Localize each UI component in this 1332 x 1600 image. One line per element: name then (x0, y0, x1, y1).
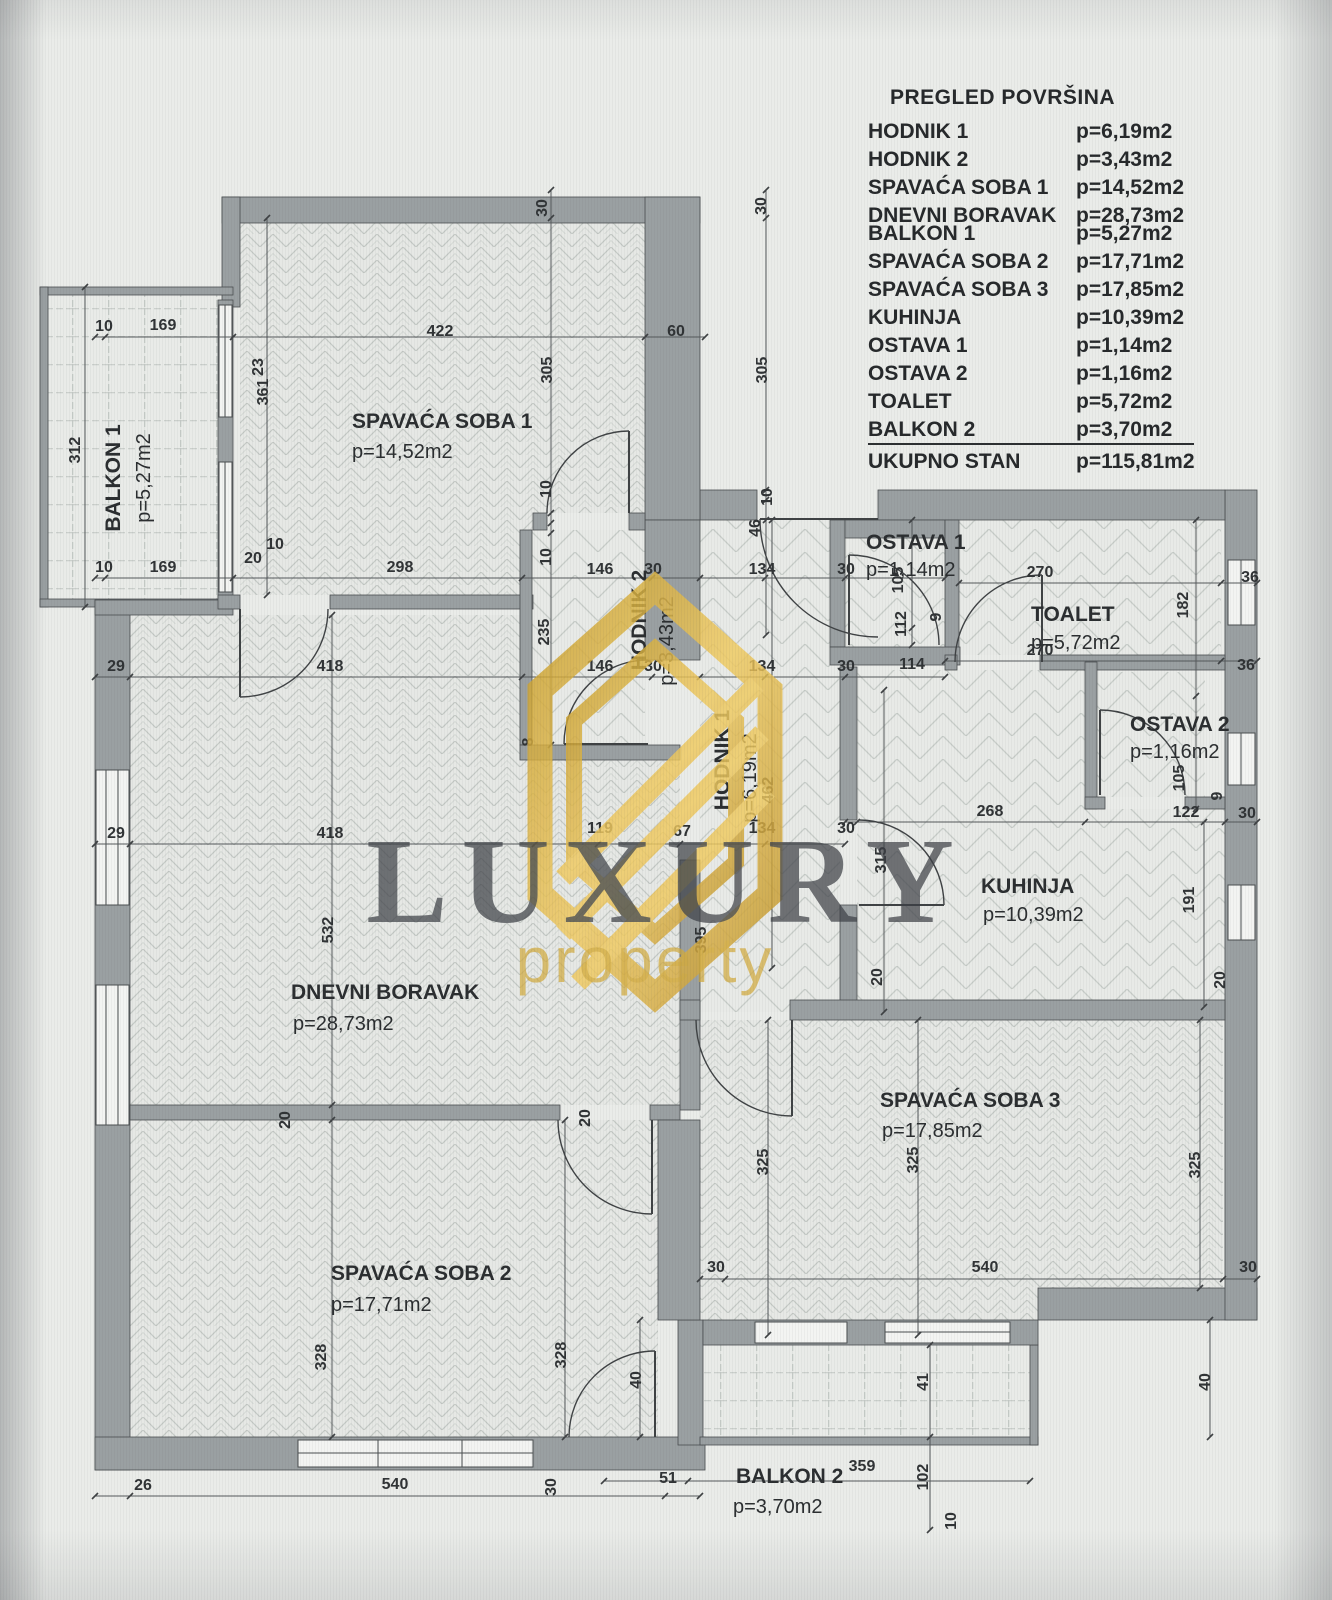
legend-row: SPAVAĆA SOBA 1p=14,52m2 (868, 176, 1194, 198)
dimension-label: 10 (95, 318, 113, 335)
dimension-label: 112 (893, 611, 910, 637)
room-label-balkon1: BALKON 1 (102, 424, 125, 532)
room-label-toalet: TOALET (1031, 603, 1115, 626)
dimension-label: 328 (553, 1342, 570, 1369)
dimension-label: 540 (382, 1476, 409, 1493)
room-label-ostava1: OSTAVA 1 (866, 531, 966, 554)
legend-room-area: p=115,81m2 (1076, 450, 1195, 474)
dimension-label: 169 (150, 559, 177, 576)
floorplan-photo: 1016942260101692981463013430270362941814… (0, 0, 1332, 1600)
dimension-label: 29 (107, 825, 125, 842)
legend-row: OSTAVA 1p=1,14m2 (868, 334, 1194, 356)
legend-room-name: BALKON 2 (868, 418, 975, 441)
dimension-label: 182 (1175, 592, 1192, 619)
legend-room-name: SPAVAĆA SOBA 2 (868, 250, 1048, 273)
dimension-label: 23 (250, 358, 267, 376)
legend-room-name: HODNIK 1 (868, 120, 968, 143)
dimension-label: 122 (1173, 804, 1200, 821)
legend-row: TOALETp=5,72m2 (868, 390, 1194, 412)
dimension-label: 312 (67, 437, 84, 464)
legend-row: HODNIK 1p=6,19m2 (868, 120, 1194, 142)
watermark-property-text: property (516, 924, 775, 996)
legend-room-name: TOALET (868, 390, 952, 413)
window-ostava2-east (1228, 733, 1255, 785)
legend-room-area: p=10,39m2 (1076, 306, 1184, 330)
legend-room-area: p=5,72m2 (1076, 390, 1172, 414)
dimension-label: 328 (313, 1344, 330, 1371)
dimension-label: 40 (1197, 1373, 1214, 1391)
dimension-label: 10 (943, 1512, 960, 1530)
dimension-label: 29 (107, 658, 125, 675)
dimension-label: 9 (928, 612, 945, 621)
legend-room-name: OSTAVA 1 (868, 334, 968, 357)
room-area-balkon1: p=5,27m2 (133, 433, 155, 523)
window-balcony1-upper (219, 305, 232, 417)
dimension-label: 30 (1238, 805, 1256, 822)
legend-room-area: p=1,14m2 (1076, 334, 1172, 358)
room-label-soba2: SPAVAĆA SOBA 2 (331, 1261, 511, 1285)
dimension-label: 10 (266, 536, 284, 553)
legend-row: OSTAVA 2p=1,16m2 (868, 362, 1194, 384)
dimension-label: 36 (1237, 657, 1255, 674)
legend-room-name: BALKON 1 (868, 222, 975, 245)
dimension-label: 30 (1239, 1259, 1257, 1276)
legend-room-name: SPAVAĆA SOBA 1 (868, 176, 1048, 199)
dimension-label: 169 (150, 317, 177, 334)
dimension-label: 10 (538, 480, 555, 498)
legend-row: SPAVAĆA SOBA 3p=17,85m2 (868, 278, 1194, 300)
window-south (298, 1440, 533, 1467)
legend-room-area: p=3,70m2 (1076, 418, 1172, 442)
area-summary-table: HODNIK 1p=6,19m2HODNIK 2p=3,43m2SPAVAĆA … (868, 120, 1194, 478)
legend-room-area: p=17,85m2 (1076, 278, 1184, 302)
dimension-label: 105 (1171, 765, 1188, 792)
legend-row: BALKON 1p=5,27m2 (868, 222, 1194, 244)
room-area-ostava1: p=1,14m2 (866, 559, 956, 581)
legend-room-area: p=3,43m2 (1076, 148, 1172, 172)
window-balcony1-door (219, 462, 232, 592)
legend-row: HODNIK 2p=3,43m2 (868, 148, 1194, 170)
room-area-soba3: p=17,85m2 (882, 1120, 983, 1142)
window-west-2 (96, 985, 129, 1125)
dimension-label: 20 (577, 1109, 594, 1127)
legend-room-area: p=5,27m2 (1076, 222, 1172, 246)
dimension-label: 359 (849, 1458, 876, 1475)
dimension-label: 20 (869, 968, 886, 986)
dimension-label: 114 (899, 656, 925, 673)
window-balcony2 (885, 1322, 1010, 1343)
dimension-label: 305 (754, 357, 771, 384)
dimension-label: 235 (536, 619, 553, 646)
dimension-label: 20 (1212, 971, 1229, 989)
dimension-label: 20 (244, 550, 262, 567)
legend-room-name: SPAVAĆA SOBA 3 (868, 278, 1048, 301)
dimension-label: 102 (915, 1464, 932, 1491)
dimension-label: 26 (134, 1477, 152, 1494)
legend-room-name: KUHINJA (868, 306, 961, 329)
legend-room-area: p=14,52m2 (1076, 176, 1184, 200)
room-label-soba1: SPAVAĆA SOBA 1 (352, 409, 533, 433)
dimension-label: 30 (837, 561, 855, 578)
dimension-label: 30 (707, 1259, 725, 1276)
dimension-label: 532 (320, 917, 337, 944)
dimension-label: 46 (747, 519, 764, 537)
window-kuhinja-east (1228, 885, 1255, 940)
room-label-ostava2: OSTAVA 2 (1130, 713, 1230, 736)
dimension-label: 191 (1181, 887, 1198, 914)
dimension-label: 30 (534, 199, 551, 217)
dimension-label: 540 (972, 1259, 999, 1276)
legend-room-name: HODNIK 2 (868, 148, 968, 171)
legend-room-name: UKUPNO STAN (868, 450, 1020, 473)
room-label-dnevni: DNEVNI BORAVAK (291, 981, 479, 1004)
dimension-label: 422 (427, 323, 454, 340)
dimension-label: 146 (587, 561, 614, 578)
room-label-kuhinja: KUHINJA (981, 875, 1074, 898)
dimension-label: 298 (387, 559, 414, 576)
dimension-label: 30 (753, 197, 770, 215)
dimension-label: 325 (755, 1149, 772, 1176)
door-balcony2-opening (755, 1322, 847, 1343)
dimension-label: 41 (915, 1373, 932, 1391)
dimension-label: 10 (538, 548, 555, 566)
dimension-label: 10 (95, 559, 113, 576)
dimension-label: 30 (543, 1478, 560, 1496)
room-area-ostava2: p=1,16m2 (1130, 741, 1220, 763)
dimension-label: 325 (905, 1147, 922, 1174)
dimension-label: 134 (749, 561, 776, 578)
dimension-label: 10 (759, 488, 776, 506)
dimension-label: 60 (667, 323, 685, 340)
dimension-label: 36 (1241, 569, 1259, 586)
legend-room-area: p=6,19m2 (1076, 120, 1172, 144)
dimension-label: 20 (277, 1111, 294, 1129)
legend-room-area: p=17,71m2 (1076, 250, 1184, 274)
dimension-label: 270 (1027, 564, 1054, 581)
room-area-soba1: p=14,52m2 (352, 441, 453, 463)
room-label-soba3: SPAVAĆA SOBA 3 (880, 1088, 1060, 1112)
legend-row: KUHINJAp=10,39m2 (868, 306, 1194, 328)
dimension-label: 325 (1187, 1152, 1204, 1179)
room-area-kuhinja: p=10,39m2 (983, 904, 1084, 926)
dimension-label: 30 (837, 658, 855, 675)
dimension-label: 361 (255, 379, 272, 406)
dimension-label: 40 (628, 1371, 645, 1389)
dimension-label: 418 (317, 825, 344, 842)
room-area-dnevni: p=28,73m2 (293, 1013, 394, 1035)
dimension-label: 418 (317, 658, 344, 675)
legend-row: UKUPNO STANp=115,81m2 (868, 450, 1194, 472)
dimension-label: 268 (977, 803, 1004, 820)
legend-row: SPAVAĆA SOBA 2p=17,71m2 (868, 250, 1194, 272)
legend-title: PREGLED POVRŠINA (890, 86, 1115, 110)
legend-room-name: OSTAVA 2 (868, 362, 968, 385)
room-area-balkon2: p=3,70m2 (733, 1496, 823, 1518)
dimension-label: 9 (1209, 791, 1226, 800)
room-label-balkon2: BALKON 2 (736, 1465, 843, 1488)
legend-row: BALKON 2p=3,70m2 (868, 418, 1194, 445)
dimension-label: 305 (539, 357, 556, 384)
legend-room-area: p=1,16m2 (1076, 362, 1172, 386)
room-area-soba2: p=17,71m2 (331, 1294, 432, 1316)
room-area-toalet: p=5,72m2 (1031, 632, 1121, 654)
dimension-label: 51 (659, 1470, 677, 1487)
